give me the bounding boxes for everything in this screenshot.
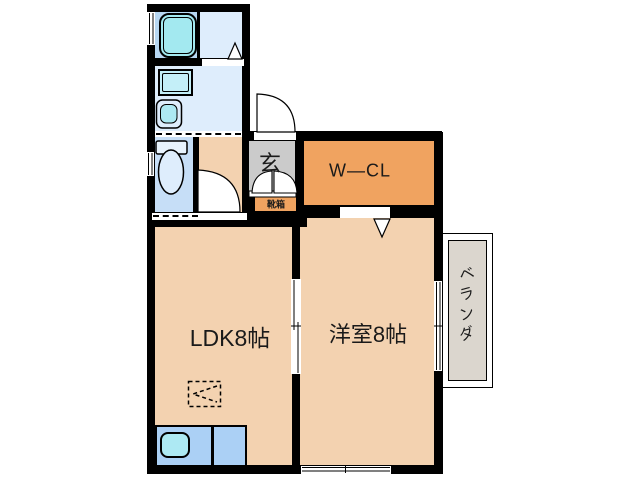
veranda-window (434, 281, 442, 371)
veranda-label: ベランダ (459, 265, 474, 345)
bath-window (146, 12, 155, 45)
bathtub (159, 13, 197, 58)
toilet-window (146, 152, 154, 176)
dressing-area-upper (198, 10, 244, 60)
south-window (301, 466, 391, 474)
wall-left (147, 4, 155, 474)
wcl-door-opening (340, 207, 390, 218)
wall-toilet-divider (193, 137, 199, 213)
toilet-room (153, 135, 195, 213)
bath-door-opening (202, 59, 244, 66)
kitchen-sink (160, 432, 190, 458)
western-room-label: 洋室8帖 (329, 317, 407, 349)
hallway (197, 135, 244, 213)
sliding-door-ldk-western (291, 279, 301, 374)
entrance-door-opening (254, 132, 296, 140)
hall-ldk-dashes (153, 215, 198, 217)
kitchen-counter-divider (211, 425, 214, 467)
entrance-door-swing (257, 94, 295, 132)
bathtub-inner-line (163, 17, 193, 54)
entrance-label: 玄 (259, 146, 281, 178)
walk-in-closet-label: W—CL (329, 161, 391, 182)
wall-topblock-right (242, 4, 250, 141)
washroom-boundary-dashes (156, 133, 241, 135)
floor-plan: 玄 W—CL LDK8帖 洋室8帖 靴箱 ベランダ (0, 0, 638, 480)
ldk-label: LDK8帖 (190, 319, 271, 353)
shoe-box-label: 靴箱 (267, 198, 285, 211)
wall-bath-divider (197, 10, 200, 58)
washing-machine-pan-inner (162, 73, 189, 92)
washing-machine-pan (158, 69, 193, 96)
